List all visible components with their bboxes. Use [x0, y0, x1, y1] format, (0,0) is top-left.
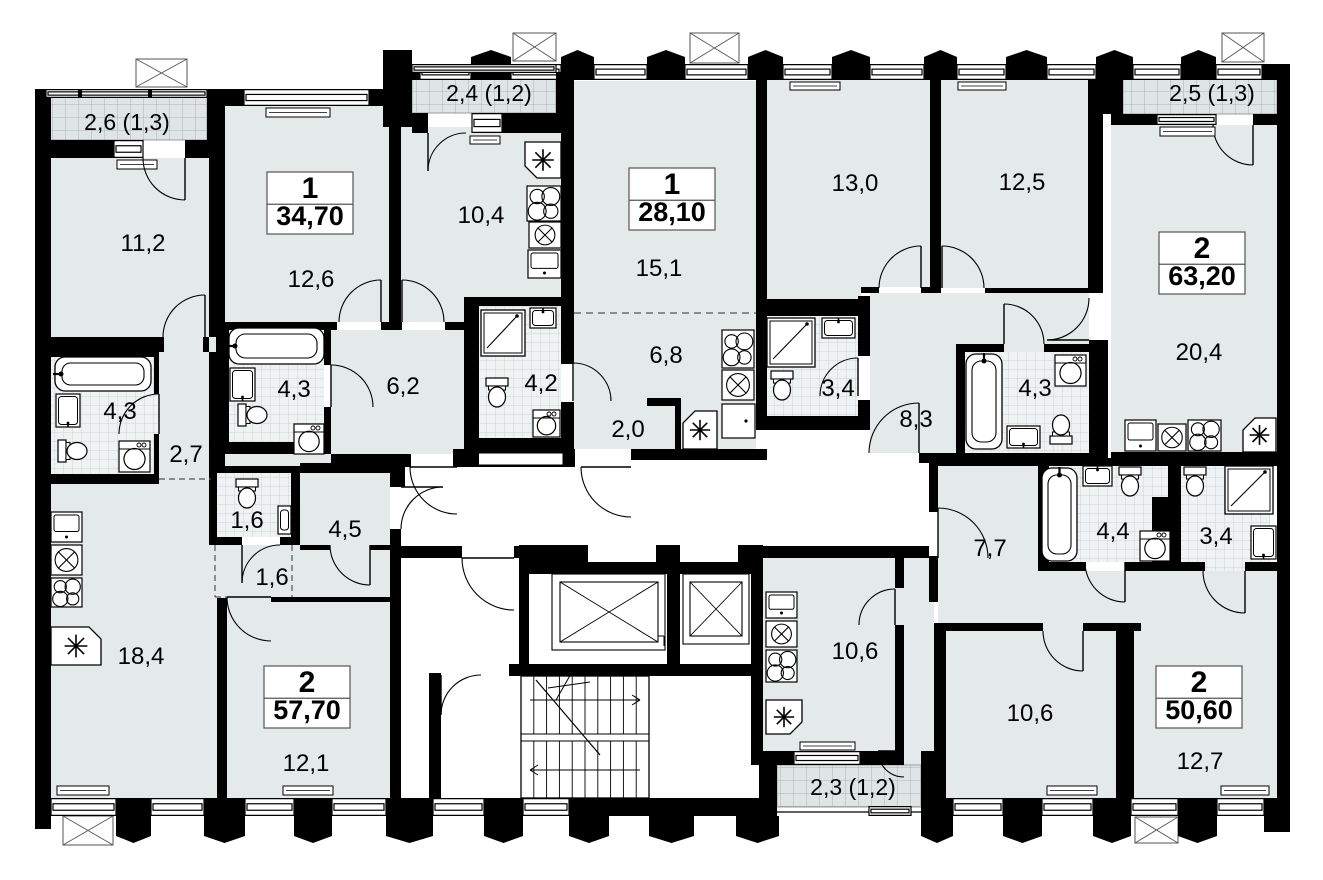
svg-text:4,3: 4,3: [277, 376, 310, 403]
svg-text:11,2: 11,2: [121, 230, 166, 257]
svg-text:10,6: 10,6: [832, 638, 879, 665]
svg-text:2,0: 2,0: [611, 416, 644, 443]
svg-text:4,5: 4,5: [328, 516, 361, 543]
svg-text:3,4: 3,4: [1199, 523, 1232, 550]
svg-text:2,6 (1,3): 2,6 (1,3): [84, 109, 170, 135]
svg-text:2,4 (1,2): 2,4 (1,2): [446, 80, 532, 106]
svg-text:4,4: 4,4: [1096, 518, 1129, 545]
svg-text:10,6: 10,6: [1007, 700, 1054, 727]
svg-text:1,6: 1,6: [230, 507, 263, 534]
svg-text:4,3: 4,3: [103, 398, 136, 425]
svg-text:12,7: 12,7: [1177, 748, 1224, 775]
svg-text:2,7: 2,7: [169, 441, 202, 468]
svg-text:7,7: 7,7: [973, 535, 1006, 562]
svg-text:57,70: 57,70: [273, 695, 341, 725]
svg-text:15,1: 15,1: [636, 255, 683, 282]
svg-text:1,6: 1,6: [255, 564, 288, 591]
svg-text:12,6: 12,6: [288, 266, 335, 293]
svg-text:12,1: 12,1: [283, 750, 330, 777]
svg-text:3,4: 3,4: [821, 375, 854, 402]
svg-text:34,70: 34,70: [276, 201, 344, 231]
svg-text:13,0: 13,0: [832, 170, 879, 197]
svg-text:18,4: 18,4: [118, 643, 165, 670]
svg-text:2,3 (1,2): 2,3 (1,2): [810, 774, 896, 800]
svg-text:6,8: 6,8: [649, 342, 682, 369]
svg-text:28,10: 28,10: [638, 197, 706, 227]
svg-text:2,5 (1,3): 2,5 (1,3): [1169, 80, 1255, 106]
svg-text:4,2: 4,2: [524, 370, 557, 397]
svg-text:63,20: 63,20: [1168, 261, 1236, 291]
svg-text:20,4: 20,4: [1176, 339, 1223, 366]
svg-text:6,2: 6,2: [386, 373, 419, 400]
svg-text:12,5: 12,5: [999, 169, 1046, 196]
svg-text:50,60: 50,60: [1165, 695, 1233, 725]
svg-text:4,3: 4,3: [1018, 375, 1051, 402]
svg-text:10,4: 10,4: [458, 202, 505, 229]
svg-text:8,3: 8,3: [899, 406, 932, 433]
